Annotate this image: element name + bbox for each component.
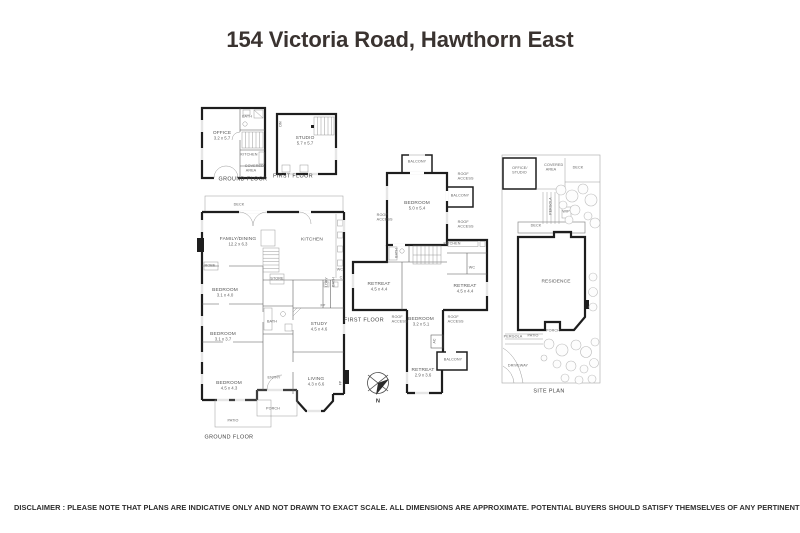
- site-wip: WIP: [562, 210, 569, 214]
- room-dims: 3.2 x 5.1: [408, 322, 434, 327]
- roof-access-label: ROOF ACCESS: [458, 173, 467, 182]
- room-robe: ROBE: [205, 264, 216, 268]
- room-bedroom-2: BEDROOM 3.2 x 5.1: [408, 317, 434, 328]
- room-name: BEDROOM: [408, 317, 434, 322]
- room-name: RETREAT: [368, 282, 391, 287]
- site-pergola-bottom: PERGOLA: [504, 335, 523, 339]
- room-dims: 3.2 x 5.7: [213, 136, 231, 141]
- room-office: OFFICE 3.2 x 5.7: [213, 131, 231, 142]
- room-covered-area: COVERED AREA: [245, 165, 257, 174]
- room-family-dining: FAMILY/DINING 12.2 x 6.3: [220, 237, 256, 248]
- room-entry: ENTRY: [267, 376, 280, 380]
- site-deck-band: DECK: [531, 224, 542, 228]
- room-name: RETREAT: [454, 284, 477, 289]
- room-bedroom-1: BEDROOM 5.0 x 5.4: [404, 201, 430, 212]
- fireplace-label: FP: [321, 304, 326, 308]
- room-dims: 4.5 x 4.6: [311, 327, 328, 332]
- room-study: STUDY 4.5 x 4.6: [311, 322, 328, 333]
- floor-label-outbuilding-ground: GROUND FLOOR: [219, 177, 268, 183]
- roof-access-label: ROOF ACCESS: [448, 316, 457, 325]
- room-bath: BATH: [267, 320, 277, 324]
- stair-direction-dn: DN: [279, 121, 283, 126]
- room-name: OFFICE: [213, 131, 231, 136]
- site-plan: [499, 152, 605, 400]
- room-wc: WC: [469, 266, 475, 270]
- room-dims: 4.5 x 4.3: [216, 386, 242, 391]
- site-deck-top: DECK: [573, 166, 584, 170]
- room-retreat-2: RETREAT 4.5 x 4.4: [454, 284, 477, 295]
- room-dims: 4.5 x 4.4: [368, 287, 391, 292]
- room-name: STUDIO: [296, 136, 315, 141]
- compass-icon: [364, 369, 394, 401]
- stairs-icon: [242, 132, 263, 148]
- room-name: BEDROOM: [404, 201, 430, 206]
- room-wc: WC: [337, 268, 343, 272]
- compass-north-label: N: [376, 399, 380, 406]
- roof-access-label: ROOF ACCESS: [377, 214, 386, 223]
- room-dims: 4.5 x 4.4: [454, 289, 477, 294]
- room-retreat-3: RETREAT 2.9 x 3.6: [412, 368, 435, 379]
- room-laundry: LDRY: [325, 277, 329, 287]
- room-kitchen: KITCHEN: [301, 237, 323, 243]
- site-patio: PATIO: [527, 334, 538, 338]
- room-name: BEDROOM: [212, 288, 238, 293]
- floor-label-site-plan: SITE PLAN: [533, 389, 564, 395]
- room-kitchen: KITCHEN: [241, 153, 258, 157]
- roof-access-label: ROOF ACCESS: [392, 316, 401, 325]
- room-name: LIVING: [308, 377, 324, 382]
- room-dims: 5.0 x 5.4: [404, 206, 430, 211]
- stairs-icon: [263, 248, 279, 272]
- room-dims: 4.3 x 6.6: [308, 382, 325, 387]
- room-balcony-lower: BALCONY: [444, 358, 462, 362]
- disclaimer-text: DISCLAIMER : PLEASE NOTE THAT PLANS ARE …: [14, 503, 794, 512]
- stairs-icon: [413, 246, 441, 264]
- room-bedroom-3: BEDROOM 4.5 x 4.3: [216, 381, 242, 392]
- roof-access-label: ROOF ACCESS: [458, 221, 467, 230]
- site-porch: PORCH: [546, 329, 560, 333]
- site-office-studio: OFFICE/ STUDIO: [512, 167, 526, 176]
- room-dims: 12.2 x 6.3: [220, 242, 256, 247]
- room-balcony-right: BALCONY: [451, 194, 469, 198]
- floorplan-page: 154 Victoria Road, Hawthorn East: [0, 0, 800, 533]
- floor-label-main-first: FIRST FLOOR: [344, 318, 384, 324]
- room-living: LIVING 4.3 x 6.6: [308, 377, 325, 388]
- room-porch: PORCH: [266, 407, 280, 411]
- room-bath-2: BATH: [332, 277, 336, 286]
- page-title: 154 Victoria Road, Hawthorn East: [0, 27, 800, 53]
- site-pergola-top: PERGOLA: [549, 197, 553, 214]
- room-name: BEDROOM: [210, 332, 236, 337]
- room-dims: 3.1 x 4.0: [212, 293, 238, 298]
- room-retreat-1: RETREAT 4.5 x 4.4: [368, 282, 391, 293]
- room-dims: 2.9 x 3.6: [412, 373, 435, 378]
- room-cupboard: C: [340, 276, 343, 280]
- room-name: STUDY: [311, 322, 328, 327]
- room-kitchen: KITCHEN: [444, 242, 461, 246]
- room-name: RETREAT: [412, 368, 435, 373]
- room-name: FAMILY/DINING: [220, 237, 256, 242]
- room-studio: STUDIO 5.7 x 5.7: [296, 136, 315, 147]
- room-bedroom-2: BEDROOM 3.1 x 3.7: [210, 332, 236, 343]
- fireplace-label: FP: [339, 381, 343, 386]
- site-residence: RESIDENCE: [541, 279, 570, 285]
- room-deck: DECK: [234, 203, 245, 207]
- ac-unit-label: AC: [433, 338, 437, 343]
- room-bedroom-1: BEDROOM 3.1 x 4.0: [212, 288, 238, 299]
- balcony-walls: [402, 155, 473, 370]
- room-balcony-top: BALCONY: [408, 160, 426, 164]
- site-covered-area: COVERED AREA: [544, 164, 558, 173]
- stairs-icon: [314, 117, 334, 135]
- room-bath: BATH: [395, 248, 399, 257]
- room-dims: 3.1 x 3.7: [210, 337, 236, 342]
- site-driveway: DRIVEWAY: [508, 364, 528, 368]
- room-store: STORE: [270, 277, 283, 281]
- floor-label-outbuilding-first: FIRST FLOOR: [273, 174, 313, 180]
- room-name: BEDROOM: [216, 381, 242, 386]
- floor-label-main-ground: GROUND FLOOR: [205, 435, 254, 441]
- room-bath: BATH: [242, 115, 252, 119]
- room-dims: 5.7 x 5.7: [296, 141, 315, 146]
- room-patio: PATIO: [227, 419, 238, 423]
